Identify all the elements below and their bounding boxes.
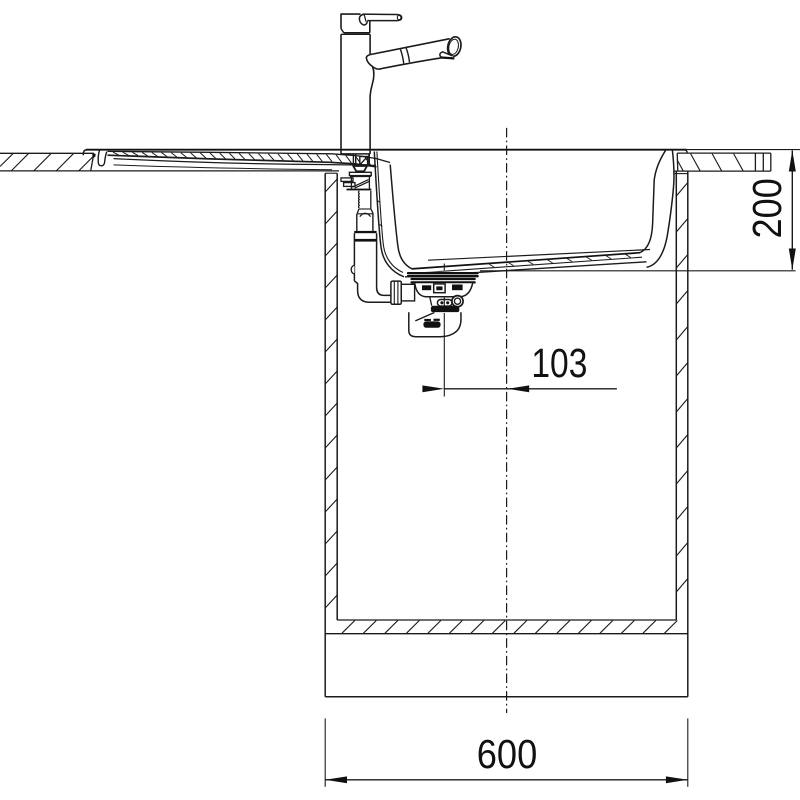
svg-text:600: 600 bbox=[477, 731, 538, 777]
svg-text:103: 103 bbox=[531, 340, 587, 386]
svg-text:200: 200 bbox=[744, 178, 790, 238]
